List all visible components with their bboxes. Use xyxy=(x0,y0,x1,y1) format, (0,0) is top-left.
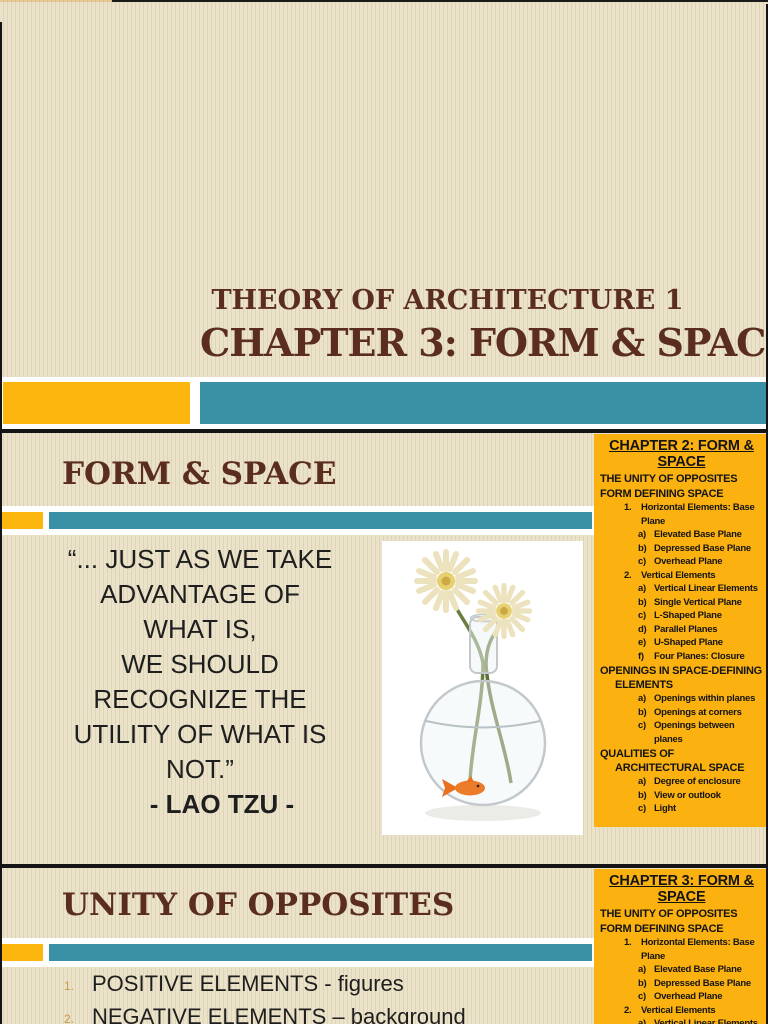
outline-item-text: Vertical Linear Elements xyxy=(654,582,758,596)
outline-item-text: FORM DEFINING SPACE xyxy=(600,923,723,935)
daisy-flower xyxy=(478,585,529,636)
quote-line: NOT.” xyxy=(20,752,380,787)
outline-item-text: Openings at corners xyxy=(654,706,742,720)
outline-item: c) L-Shaped Plane xyxy=(600,609,763,623)
outline-item-marker: 1. xyxy=(624,501,641,528)
outline-item: THE UNITY OF OPPOSITES xyxy=(600,472,763,486)
orange-accent-block xyxy=(0,944,43,961)
outline-item-marker: d) xyxy=(638,623,654,637)
elements-list: 1. POSITIVE ELEMENTS - figures 2. NEGATI… xyxy=(0,971,590,1024)
outline-item: FORM DEFINING SPACE xyxy=(600,922,763,936)
quote-line: WHAT IS, xyxy=(20,612,380,647)
outline-item-text: QUALITIES OF ARCHITECTURAL SPACE xyxy=(600,748,744,774)
outline-item-text: Vertical Linear Elements xyxy=(654,1017,758,1024)
chapter2-outline-sidebar: CHAPTER 2: FORM & SPACE THE UNITY OF OPP… xyxy=(594,434,768,827)
daisy-flower xyxy=(417,552,475,610)
list-item-text: POSITIVE ELEMENTS - figures xyxy=(92,971,404,997)
outline-item-text: Degree of enclosure xyxy=(654,775,741,789)
chapter-title: CHAPTER 3: FORM & SPACE xyxy=(200,318,695,368)
outline-item-text: Depressed Base Plane xyxy=(654,542,751,556)
quote-line: WE SHOULD xyxy=(20,647,380,682)
outline-item: QUALITIES OF ARCHITECTURAL SPACE xyxy=(600,747,763,775)
outline-item: 1. Horizontal Elements: Base Plane xyxy=(600,936,763,963)
quote-line: RECOGNIZE THE xyxy=(20,682,380,717)
outline-item: THE UNITY OF OPPOSITES xyxy=(600,907,763,921)
teal-accent-bar xyxy=(200,382,768,424)
outline-item: b) Depressed Base Plane xyxy=(600,977,763,991)
outline-item-text: Horizontal Elements: Base Plane xyxy=(641,936,763,963)
sidebar-outline: THE UNITY OF OPPOSITES FORM DEFINING SPA… xyxy=(600,907,763,1024)
lao-tzu-quote: “... JUST AS WE TAKEADVANTAGE OFWHAT IS,… xyxy=(20,542,380,822)
outline-item-marker: b) xyxy=(638,542,654,556)
page-top-border xyxy=(112,0,768,2)
outline-item-text: THE UNITY OF OPPOSITES xyxy=(600,908,737,920)
outline-item-marker: a) xyxy=(638,692,654,706)
outline-item-marker: a) xyxy=(638,582,654,596)
quote-line: ADVANTAGE OF xyxy=(20,577,380,612)
outline-item-text: Light xyxy=(654,802,676,816)
document-page: THEORY OF ARCHITECTURE 1 CHAPTER 3: FORM… xyxy=(0,0,768,1024)
outline-item-marker: 2. xyxy=(624,1004,641,1018)
outline-item-marker: b) xyxy=(638,789,654,803)
outline-item-text: View or outlook xyxy=(654,789,721,803)
sidebar-title-line2: SPACE xyxy=(600,454,763,470)
orange-accent-block xyxy=(3,382,190,424)
outline-item-text: Vertical Elements xyxy=(641,1004,715,1018)
outline-item-text: THE UNITY OF OPPOSITES xyxy=(600,473,737,485)
outline-item-text: Vertical Elements xyxy=(641,569,715,583)
outline-item-marker: a) xyxy=(638,1017,654,1024)
slide1-title-block: THEORY OF ARCHITECTURE 1 CHAPTER 3: FORM… xyxy=(200,284,695,368)
outline-item-marker: e) xyxy=(638,636,654,650)
outline-item-marker: f) xyxy=(638,650,654,664)
outline-item: c) Light xyxy=(600,802,763,816)
outline-item-marker: c) xyxy=(638,555,654,569)
slide-1-title: THEORY OF ARCHITECTURE 1 CHAPTER 3: FORM… xyxy=(0,0,768,429)
page-left-border xyxy=(0,22,2,1024)
slide2-heading: FORM & SPACE xyxy=(62,456,336,492)
outline-item-marker: 2. xyxy=(624,569,641,583)
list-item-number: 1. xyxy=(64,979,92,993)
sidebar-title: CHAPTER 3: FORM & SPACE xyxy=(600,873,763,905)
sidebar-title-line1: CHAPTER 3: FORM & xyxy=(600,873,763,889)
outline-item-text: Openings within planes xyxy=(654,692,755,706)
outline-item-marker: b) xyxy=(638,706,654,720)
quote-lines: “... JUST AS WE TAKEADVANTAGE OFWHAT IS,… xyxy=(20,542,380,787)
outline-item-marker: b) xyxy=(638,977,654,991)
vase-illustration xyxy=(382,541,583,835)
outline-item-text: Single Vertical Plane xyxy=(654,596,742,610)
outline-item-marker: c) xyxy=(638,802,654,816)
slide1-accent-band xyxy=(0,377,768,429)
quote-attribution: - LAO TZU - xyxy=(42,787,402,822)
teal-accent-bar xyxy=(49,512,592,529)
outline-item-text: Openings between planes xyxy=(654,719,763,746)
outline-item: c) Overhead Plane xyxy=(600,555,763,569)
outline-item: a) Degree of enclosure xyxy=(600,775,763,789)
outline-item: b) Openings at corners xyxy=(600,706,763,720)
orange-accent-block xyxy=(0,512,43,529)
flower-vase-goldfish-photo xyxy=(382,541,583,835)
outline-item-text: Elevated Base Plane xyxy=(654,963,742,977)
outline-item-text: Overhead Plane xyxy=(654,555,722,569)
slide3-heading: UNITY OF OPPOSITES xyxy=(62,887,454,923)
outline-item: a) Vertical Linear Elements xyxy=(600,1017,763,1024)
outline-item: c) Overhead Plane xyxy=(600,990,763,1004)
outline-item-text: Parallel Planes xyxy=(654,623,717,637)
outline-item-marker: c) xyxy=(638,990,654,1004)
outline-item: b) View or outlook xyxy=(600,789,763,803)
sidebar-outline: THE UNITY OF OPPOSITES FORM DEFINING SPA… xyxy=(600,472,763,816)
outline-item: f) Four Planes: Closure xyxy=(600,650,763,664)
outline-item-marker: c) xyxy=(638,719,654,746)
slide-3-unity-of-opposites: UNITY OF OPPOSITES 1. POSITIVE ELEMENTS … xyxy=(0,868,768,1024)
sidebar-title: CHAPTER 2: FORM & SPACE xyxy=(600,438,763,470)
outline-item-text: Elevated Base Plane xyxy=(654,528,742,542)
outline-item-text: Horizontal Elements: Base Plane xyxy=(641,501,763,528)
list-item: 2. NEGATIVE ELEMENTS – background xyxy=(0,1004,590,1024)
outline-item-marker: 1. xyxy=(624,936,641,963)
outline-item: 1. Horizontal Elements: Base Plane xyxy=(600,501,763,528)
outline-item-text: Depressed Base Plane xyxy=(654,977,751,991)
outline-item: a) Elevated Base Plane xyxy=(600,963,763,977)
outline-item-marker: b) xyxy=(638,596,654,610)
list-item: 1. POSITIVE ELEMENTS - figures xyxy=(0,971,590,997)
outline-item: c) Openings between planes xyxy=(600,719,763,746)
outline-item: b) Single Vertical Plane xyxy=(600,596,763,610)
outline-item-text: L-Shaped Plane xyxy=(654,609,722,623)
outline-item-text: OPENINGS IN SPACE-DEFINING ELEMENTS xyxy=(600,665,762,691)
quote-line: “... JUST AS WE TAKE xyxy=(20,542,380,577)
outline-item-text: FORM DEFINING SPACE xyxy=(600,488,723,500)
outline-item-marker: c) xyxy=(638,609,654,623)
outline-item-text: Four Planes: Closure xyxy=(654,650,745,664)
quote-line: UTILITY OF WHAT IS xyxy=(20,717,380,752)
chapter3-outline-sidebar: CHAPTER 3: FORM & SPACE THE UNITY OF OPP… xyxy=(594,869,768,1024)
outline-item: FORM DEFINING SPACE xyxy=(600,487,763,501)
sidebar-title-line1: CHAPTER 2: FORM & xyxy=(600,438,763,454)
outline-item-marker: a) xyxy=(638,528,654,542)
outline-item: 2. Vertical Elements xyxy=(600,1004,763,1018)
outline-item: e) U-Shaped Plane xyxy=(600,636,763,650)
outline-item: b) Depressed Base Plane xyxy=(600,542,763,556)
sidebar-title-line2: SPACE xyxy=(600,889,763,905)
page-top-border-sliver xyxy=(0,0,112,2)
list-item-number: 2. xyxy=(64,1012,92,1024)
outline-item: a) Elevated Base Plane xyxy=(600,528,763,542)
slide-2-form-and-space: FORM & SPACE “... JUST AS WE TAKEADVANTA… xyxy=(0,433,768,864)
course-title: THEORY OF ARCHITECTURE 1 xyxy=(200,284,695,318)
outline-item: d) Parallel Planes xyxy=(600,623,763,637)
list-item-text: NEGATIVE ELEMENTS – background xyxy=(92,1004,466,1024)
outline-item-text: U-Shaped Plane xyxy=(654,636,723,650)
outline-item-marker: a) xyxy=(638,963,654,977)
outline-item: a) Openings within planes xyxy=(600,692,763,706)
outline-item: a) Vertical Linear Elements xyxy=(600,582,763,596)
outline-item-marker: a) xyxy=(638,775,654,789)
outline-item: OPENINGS IN SPACE-DEFINING ELEMENTS xyxy=(600,664,763,692)
outline-item-text: Overhead Plane xyxy=(654,990,722,1004)
teal-accent-bar xyxy=(49,944,592,961)
outline-item: 2. Vertical Elements xyxy=(600,569,763,583)
